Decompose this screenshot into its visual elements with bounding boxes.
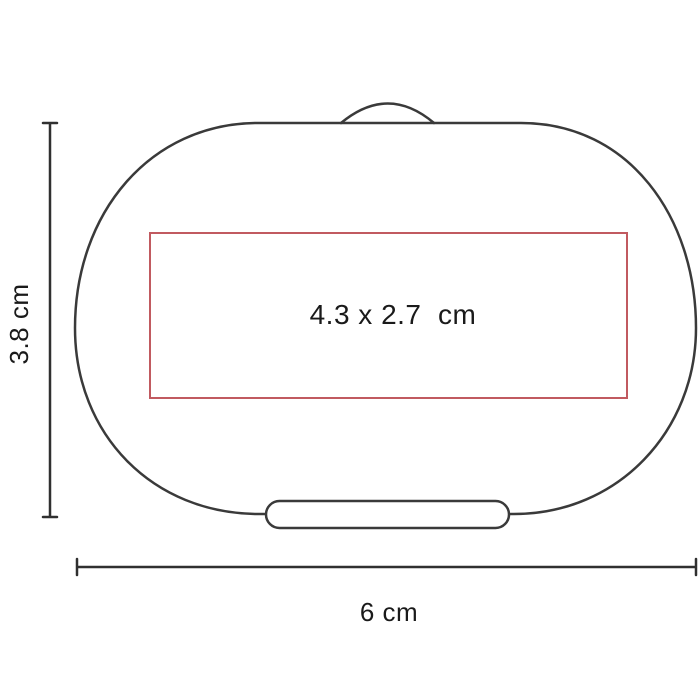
height-dimension-line: [43, 123, 57, 517]
product-dimension-diagram: 4.3 x 2.7 cm 3.8 cm 6 cm: [0, 0, 700, 700]
width-dimension-label: 6 cm: [360, 597, 418, 627]
hinge-bump: [341, 104, 434, 124]
print-area-label: 4.3 x 2.7 cm: [310, 299, 477, 330]
width-dimension-line: [77, 559, 696, 575]
height-dimension: 3.8 cm: [4, 123, 57, 517]
diagram-svg: 4.3 x 2.7 cm 3.8 cm 6 cm: [0, 0, 700, 700]
width-dimension: 6 cm: [77, 559, 696, 627]
latch-tab: [266, 501, 509, 528]
height-dimension-label: 3.8 cm: [4, 283, 34, 364]
